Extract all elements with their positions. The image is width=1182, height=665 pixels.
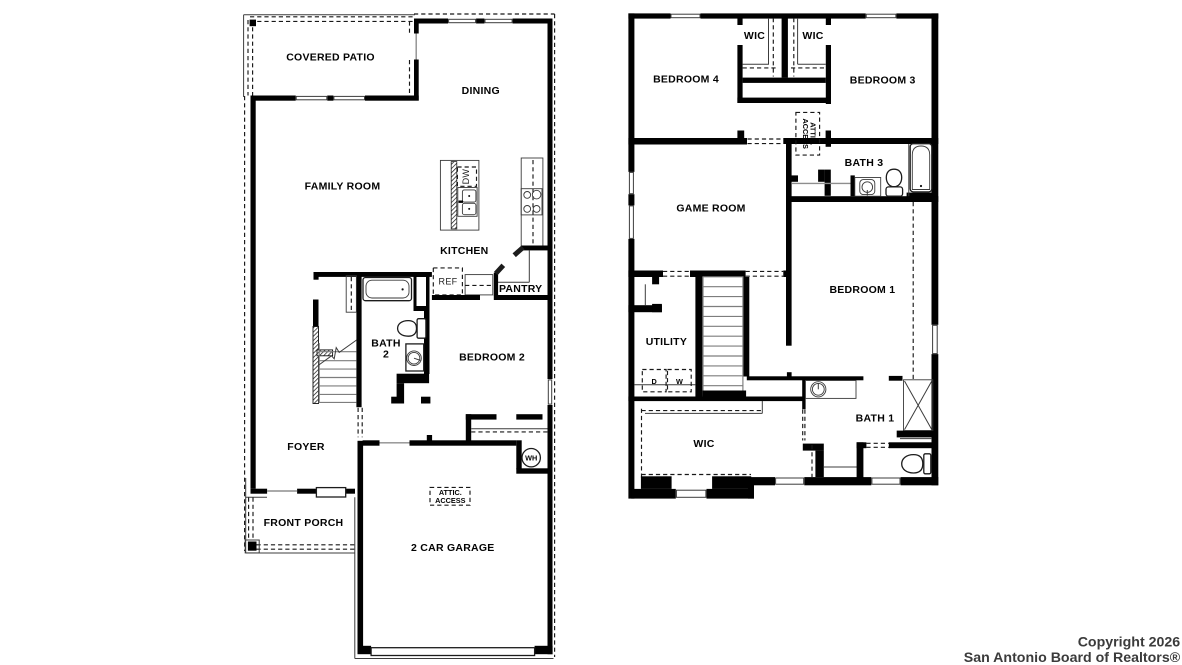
svg-text:BEDROOM 2: BEDROOM 2 (459, 352, 525, 364)
svg-text:BEDROOM 1: BEDROOM 1 (829, 284, 895, 296)
svg-text:WIC: WIC (802, 30, 823, 42)
svg-text:DINING: DINING (462, 85, 500, 97)
svg-text:WH: WH (525, 454, 537, 463)
svg-text:COVERED PATIO: COVERED PATIO (286, 51, 375, 63)
svg-text:GAME ROOM: GAME ROOM (676, 202, 745, 214)
svg-text:2 CAR GARAGE: 2 CAR GARAGE (411, 542, 495, 554)
svg-text:UTILITY: UTILITY (646, 336, 687, 348)
svg-text:D: D (652, 377, 657, 386)
svg-text:WIC: WIC (693, 438, 714, 450)
svg-text:KITCHEN: KITCHEN (440, 245, 488, 257)
svg-text:ACCESS: ACCESS (801, 118, 810, 149)
svg-text:Copyright 2026: Copyright 2026 (1078, 634, 1181, 650)
svg-text:FAMILY ROOM: FAMILY ROOM (305, 180, 381, 192)
svg-text:PANTRY: PANTRY (499, 283, 543, 295)
svg-text:FOYER: FOYER (287, 441, 325, 453)
svg-text:WIC: WIC (744, 30, 765, 42)
svg-text:REF: REF (439, 277, 458, 287)
svg-text:2: 2 (383, 349, 389, 361)
svg-text:BEDROOM 4: BEDROOM 4 (653, 73, 719, 85)
svg-text:BATH 1: BATH 1 (856, 413, 895, 425)
svg-text:ACCESS: ACCESS (435, 496, 466, 505)
svg-text:BEDROOM 3: BEDROOM 3 (850, 75, 916, 87)
svg-text:BATH 3: BATH 3 (845, 157, 884, 169)
svg-text:DW: DW (461, 169, 471, 185)
svg-text:W: W (676, 377, 683, 386)
svg-text:FRONT PORCH: FRONT PORCH (264, 517, 344, 529)
svg-text:San Antonio Board of Realtors®: San Antonio Board of Realtors® (964, 650, 1181, 665)
